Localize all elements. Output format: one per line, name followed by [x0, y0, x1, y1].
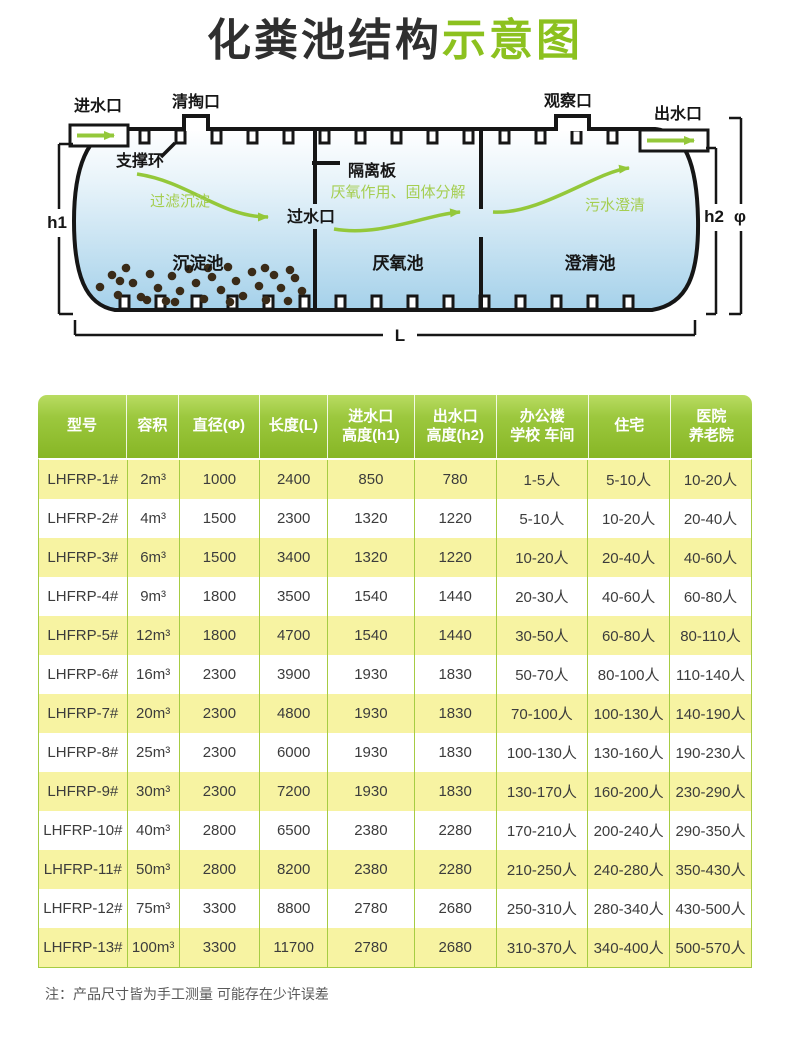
- table-cell: 2780: [328, 928, 415, 967]
- table-cell: 2300: [180, 733, 261, 772]
- dim-h1-label: h1: [47, 213, 67, 232]
- rib: [192, 296, 201, 309]
- table-row: LHFRP-10#40m³2800650023802280170-210人200…: [39, 811, 751, 850]
- col-header-outlet-height: 出水口 高度(h2): [415, 395, 497, 458]
- sediment-dot: [217, 285, 226, 294]
- rib: [516, 296, 525, 309]
- dim-phi-label: φ: [734, 207, 746, 226]
- rib: [372, 296, 381, 309]
- table-row: LHFRP-2#4m³15002300132012205-10人10-20人20…: [39, 499, 751, 538]
- sediment-dot: [108, 270, 117, 279]
- sediment-dot: [232, 276, 241, 285]
- col-header-model: 型号: [38, 395, 127, 458]
- table-cell: 3900: [260, 655, 328, 694]
- table-cell: 1800: [180, 577, 261, 616]
- table-cell: 7200: [260, 772, 328, 811]
- table-cell: 20-40人: [588, 538, 670, 577]
- table-cell: 10-20人: [588, 499, 670, 538]
- table-cell: 230-290人: [670, 772, 751, 811]
- rib: [284, 130, 293, 143]
- table-cell: 2300: [180, 655, 261, 694]
- table-cell: 40m³: [128, 811, 180, 850]
- table-cell: 350-430人: [670, 850, 751, 889]
- table-row: LHFRP-12#75m³3300880027802680250-310人280…: [39, 889, 751, 928]
- table-cell: 5-10人: [588, 460, 670, 499]
- table-cell: LHFRP-4#: [39, 577, 128, 616]
- length-bracket: [75, 320, 695, 335]
- table-cell: LHFRP-6#: [39, 655, 128, 694]
- table-row: LHFRP-13#100m³33001170027802680310-370人3…: [39, 928, 751, 967]
- col-header-volume: 容积: [127, 395, 179, 458]
- table-row: LHFRP-6#16m³230039001930183050-70人80-100…: [39, 655, 751, 694]
- table-cell: 3400: [260, 538, 328, 577]
- sediment-dot: [116, 276, 125, 285]
- table-cell: 20-30人: [497, 577, 589, 616]
- bottom-ribs: [120, 296, 633, 309]
- water-pass-label: 过水口: [287, 207, 335, 226]
- sediment-dot: [277, 283, 286, 292]
- chamber3-label: 澄清池: [565, 253, 616, 273]
- col-header-diameter: 直径(Φ): [179, 395, 260, 458]
- table-cell: LHFRP-1#: [39, 460, 128, 499]
- sediment-dot: [114, 290, 123, 299]
- chamber2-label: 厌氧池: [373, 253, 424, 273]
- table-cell: 2400: [260, 460, 328, 499]
- table-cell: 80-100人: [588, 655, 670, 694]
- table-cell: 6500: [260, 811, 328, 850]
- rib: [176, 130, 185, 143]
- table-cell: 280-340人: [588, 889, 670, 928]
- sediment-dot: [171, 297, 180, 306]
- table-cell: 2280: [415, 811, 497, 850]
- rib: [552, 296, 561, 309]
- sediment-dot: [96, 282, 105, 291]
- table-cell: 40-60人: [588, 577, 670, 616]
- table-cell: 1000: [180, 460, 261, 499]
- table-cell: 2800: [180, 811, 261, 850]
- table-cell: 1830: [415, 772, 497, 811]
- table-cell: 8200: [260, 850, 328, 889]
- page-title: 化粪池结构示意图: [0, 0, 790, 67]
- dim-h2-label: h2: [704, 207, 724, 226]
- table-cell: 100-130人: [588, 694, 670, 733]
- rib: [608, 130, 617, 143]
- table-row: LHFRP-4#9m³180035001540144020-30人40-60人6…: [39, 577, 751, 616]
- sediment-dot: [176, 286, 185, 295]
- table-cell: 40-60人: [670, 538, 751, 577]
- table-cell: 1320: [328, 538, 415, 577]
- page: 化粪池结构示意图: [0, 0, 790, 1059]
- table-cell: 1830: [415, 694, 497, 733]
- table-cell: 1440: [415, 577, 497, 616]
- col-header-inlet-height: 进水口 高度(h1): [328, 395, 415, 458]
- sediment-dot: [239, 291, 248, 300]
- table-cell: 11700: [260, 928, 328, 967]
- table-cell: 70-100人: [497, 694, 589, 733]
- rib: [120, 296, 129, 309]
- rib: [212, 130, 221, 143]
- sediment-dot: [154, 283, 163, 292]
- sediment-dot: [122, 263, 131, 272]
- table-row: LHFRP-9#30m³2300720019301830130-170人160-…: [39, 772, 751, 811]
- sediment-dot: [286, 265, 295, 274]
- table-cell: 1830: [415, 733, 497, 772]
- table-cell: 160-200人: [588, 772, 670, 811]
- table-cell: 2680: [415, 889, 497, 928]
- flow-settle-label: 过滤沉淀: [150, 193, 210, 210]
- h2-bracket: [706, 148, 716, 314]
- table-cell: LHFRP-12#: [39, 889, 128, 928]
- table-cell: 500-570人: [670, 928, 751, 967]
- rib: [444, 296, 453, 309]
- divider-label: 隔离板: [348, 161, 397, 180]
- table-cell: 10-20人: [670, 460, 751, 499]
- table-cell: 2680: [415, 928, 497, 967]
- sediment-dot: [291, 273, 300, 282]
- table-cell: 20m³: [128, 694, 180, 733]
- table-cell: 200-240人: [588, 811, 670, 850]
- sediment-dot: [162, 296, 171, 305]
- table-cell: LHFRP-8#: [39, 733, 128, 772]
- table-cell: 1930: [328, 733, 415, 772]
- flow-anaerobic-label: 厌氧作用、固体分解: [330, 184, 465, 201]
- table-cell: LHFRP-11#: [39, 850, 128, 889]
- table-cell: 210-250人: [497, 850, 589, 889]
- table-cell: 130-170人: [497, 772, 589, 811]
- table-cell: 50m³: [128, 850, 180, 889]
- sediment-dot: [129, 278, 138, 287]
- sediment-dot: [270, 270, 279, 279]
- sediment-dot: [261, 263, 270, 272]
- table-cell: 780: [415, 460, 497, 499]
- rib: [536, 130, 545, 143]
- rib: [588, 296, 597, 309]
- rib: [248, 130, 257, 143]
- sediment-dot: [146, 269, 155, 278]
- sediment-dot: [255, 281, 264, 290]
- tank-body: [74, 129, 698, 310]
- sediment-dot: [226, 297, 235, 306]
- table-cell: 30-50人: [497, 616, 589, 655]
- sediment-dot: [298, 286, 307, 295]
- sediment-dot: [208, 272, 217, 281]
- table-row: LHFRP-3#6m³150034001320122010-20人20-40人4…: [39, 538, 751, 577]
- sediment-dot: [224, 262, 233, 271]
- rib: [572, 130, 581, 143]
- table-cell: 240-280人: [588, 850, 670, 889]
- table-row: LHFRP-8#25m³2300600019301830100-130人130-…: [39, 733, 751, 772]
- support-ring-label: 支撑环: [115, 151, 164, 170]
- septic-tank-diagram: 进水口 清掏口 观察口 出水口 支撑环 隔离板 过水口 过滤沉淀 厌氧作用、固体…: [0, 69, 790, 369]
- table-cell: 1540: [328, 616, 415, 655]
- table-cell: 430-500人: [670, 889, 751, 928]
- table-cell: 12m³: [128, 616, 180, 655]
- table-cell: 30m³: [128, 772, 180, 811]
- table-cell: 2380: [328, 850, 415, 889]
- clean-port-bump: [184, 116, 208, 131]
- rib: [300, 296, 309, 309]
- rib: [408, 296, 417, 309]
- table-cell: 6m³: [128, 538, 180, 577]
- table-cell: 6000: [260, 733, 328, 772]
- table-cell: LHFRP-3#: [39, 538, 128, 577]
- table-cell: 25m³: [128, 733, 180, 772]
- observe-port-bump: [556, 116, 589, 131]
- table-cell: 100-130人: [497, 733, 589, 772]
- table-cell: 8800: [260, 889, 328, 928]
- sediment-dot: [284, 296, 293, 305]
- rib: [336, 296, 345, 309]
- top-ribs: [140, 130, 653, 143]
- rib: [428, 130, 437, 143]
- table-cell: 2800: [180, 850, 261, 889]
- observe-port-label: 观察口: [544, 91, 592, 110]
- table-cell: 1830: [415, 655, 497, 694]
- table-cell: LHFRP-9#: [39, 772, 128, 811]
- table-cell: 1930: [328, 772, 415, 811]
- table-row: LHFRP-1#2m³100024008507801-5人5-10人10-20人: [39, 460, 751, 499]
- table-cell: 3500: [260, 577, 328, 616]
- table-cell: 250-310人: [497, 889, 589, 928]
- table-cell: 2280: [415, 850, 497, 889]
- table-cell: 1930: [328, 694, 415, 733]
- table-row: LHFRP-5#12m³180047001540144030-50人60-80人…: [39, 616, 751, 655]
- table-cell: 1220: [415, 538, 497, 577]
- table-cell: 2m³: [128, 460, 180, 499]
- table-cell: 1-5人: [497, 460, 589, 499]
- table-cell: 190-230人: [670, 733, 751, 772]
- spec-table-body: LHFRP-1#2m³100024008507801-5人5-10人10-20人…: [38, 458, 752, 968]
- table-cell: 2780: [328, 889, 415, 928]
- table-cell: 80-110人: [670, 616, 751, 655]
- col-header-length: 长度(L): [260, 395, 328, 458]
- table-cell: 130-160人: [588, 733, 670, 772]
- spec-table-header: 型号 容积 直径(Φ) 长度(L) 进水口 高度(h1) 出水口 高度(h2) …: [38, 395, 752, 458]
- table-cell: 140-190人: [670, 694, 751, 733]
- rib: [320, 130, 329, 143]
- clean-port-label: 清掏口: [172, 92, 220, 111]
- sediment-dot: [248, 267, 257, 276]
- table-cell: 16m³: [128, 655, 180, 694]
- sediment-dot: [200, 294, 209, 303]
- table-cell: 5-10人: [497, 499, 589, 538]
- col-header-hospital: 医院 养老院: [671, 395, 752, 458]
- table-cell: 60-80人: [670, 577, 751, 616]
- rib: [500, 130, 509, 143]
- rib: [356, 130, 365, 143]
- table-cell: 4700: [260, 616, 328, 655]
- table-cell: 20-40人: [670, 499, 751, 538]
- table-cell: 340-400人: [588, 928, 670, 967]
- col-header-residence: 住宅: [589, 395, 671, 458]
- table-cell: LHFRP-13#: [39, 928, 128, 967]
- table-cell: 9m³: [128, 577, 180, 616]
- table-cell: 850: [328, 460, 415, 499]
- table-cell: 1930: [328, 655, 415, 694]
- table-cell: 3300: [180, 928, 261, 967]
- col-header-office-school: 办公楼 学校 车间: [497, 395, 589, 458]
- rib: [140, 130, 149, 143]
- title-green-text: 示意图: [442, 16, 583, 65]
- table-row: LHFRP-7#20m³230048001930183070-100人100-1…: [39, 694, 751, 733]
- table-cell: 1500: [180, 499, 261, 538]
- table-cell: 1320: [328, 499, 415, 538]
- table-cell: 310-370人: [497, 928, 589, 967]
- table-cell: 1800: [180, 616, 261, 655]
- table-cell: 1440: [415, 616, 497, 655]
- table-cell: 170-210人: [497, 811, 589, 850]
- table-cell: 290-350人: [670, 811, 751, 850]
- flow-clarify-label: 污水澄清: [585, 197, 645, 214]
- table-cell: 1220: [415, 499, 497, 538]
- table-cell: 1500: [180, 538, 261, 577]
- table-cell: 2300: [180, 772, 261, 811]
- table-cell: 4m³: [128, 499, 180, 538]
- table-cell: 100m³: [128, 928, 180, 967]
- table-cell: 50-70人: [497, 655, 589, 694]
- spec-table: 型号 容积 直径(Φ) 长度(L) 进水口 高度(h1) 出水口 高度(h2) …: [38, 395, 752, 968]
- table-cell: 10-20人: [497, 538, 589, 577]
- rib: [392, 130, 401, 143]
- table-cell: LHFRP-2#: [39, 499, 128, 538]
- footnote: 注：产品尺寸皆为手工测量 可能存在少许误差: [45, 984, 790, 1004]
- table-cell: LHFRP-7#: [39, 694, 128, 733]
- table-cell: 4800: [260, 694, 328, 733]
- table-row: LHFRP-11#50m³2800820023802280210-250人240…: [39, 850, 751, 889]
- table-cell: 60-80人: [588, 616, 670, 655]
- table-cell: 2380: [328, 811, 415, 850]
- table-cell: LHFRP-10#: [39, 811, 128, 850]
- inlet-label: 进水口: [74, 96, 122, 115]
- outlet-label: 出水口: [654, 104, 702, 123]
- dim-length-label: L: [395, 326, 405, 345]
- table-cell: 2300: [260, 499, 328, 538]
- table-cell: 110-140人: [670, 655, 751, 694]
- table-cell: 2300: [180, 694, 261, 733]
- sediment-dot: [192, 278, 201, 287]
- table-cell: 3300: [180, 889, 261, 928]
- table-cell: 75m³: [128, 889, 180, 928]
- table-cell: 1540: [328, 577, 415, 616]
- rib: [624, 296, 633, 309]
- chamber1-label: 沉淀池: [173, 253, 224, 273]
- sediment-dot: [262, 295, 271, 304]
- title-dark-text: 化粪池结构: [207, 16, 442, 65]
- sediment-dot: [143, 295, 152, 304]
- table-cell: LHFRP-5#: [39, 616, 128, 655]
- rib: [464, 130, 473, 143]
